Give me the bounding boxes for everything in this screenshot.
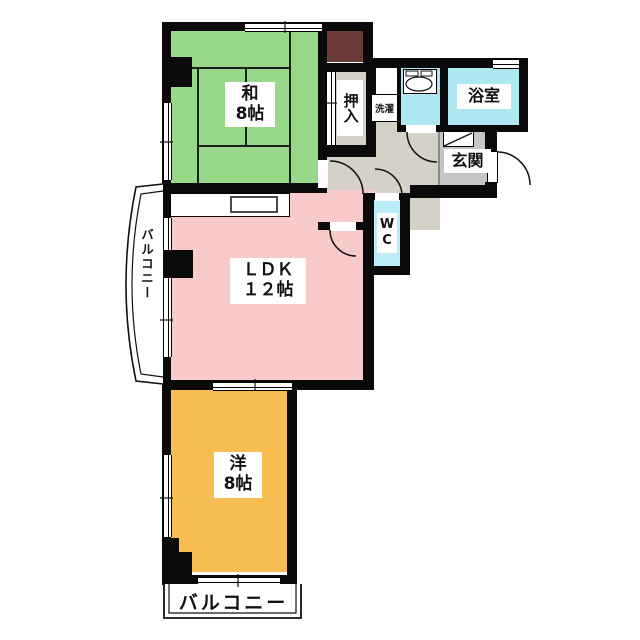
balcony-bottom-text: バルコニー: [179, 592, 289, 614]
tatami-line: [197, 145, 290, 147]
door-opening: [330, 222, 356, 231]
wall-segment: [410, 185, 497, 198]
wall-pillar: [171, 57, 192, 87]
wall-pillar: [162, 538, 179, 552]
kitchen-sink-icon: [230, 196, 278, 213]
genkan-name: 玄関: [451, 152, 483, 170]
tatami-line: [289, 31, 291, 183]
wall-segment: [318, 145, 376, 157]
sliding-door-oshiire: [326, 72, 336, 145]
window: [198, 577, 280, 586]
window: [163, 103, 172, 180]
wc-line2: C: [382, 233, 392, 249]
door-opening: [318, 160, 328, 188]
ldk-name: ＬＤＫ: [243, 261, 294, 281]
room-label-wc: W C: [377, 213, 397, 253]
front-door-arc: [497, 152, 530, 185]
balcony-bottom-label: バルコニー: [166, 588, 301, 615]
window: [213, 382, 292, 391]
window: [245, 23, 322, 32]
room-label-youshitsu: 洋 8帖: [214, 452, 262, 498]
laundry-pan-icon: 洗濯: [371, 94, 398, 122]
washitsu-size: 8帖: [236, 105, 265, 125]
wall-segment: [363, 22, 373, 63]
bathroom-name: 浴室: [468, 87, 500, 105]
shoe-cabinet-icon: [443, 131, 474, 147]
window: [163, 455, 172, 537]
window: [163, 278, 172, 357]
washbasin-icon: [403, 69, 437, 94]
room-label-bathroom: 浴室: [457, 84, 511, 109]
wall-segment: [440, 58, 448, 132]
wall-segment: [287, 390, 297, 583]
wall-pillar: [165, 250, 193, 278]
room-label-genkan: 玄関: [444, 149, 491, 173]
youshitsu-size: 8帖: [224, 475, 253, 495]
door-opening: [375, 193, 399, 201]
balcony-left-label: バルコニー: [137, 228, 156, 301]
oshiire-name: 押入: [341, 93, 358, 123]
laundry-label: 洗濯: [375, 101, 394, 115]
ldk-size: １２帖: [243, 281, 294, 301]
room-label-oshiire: 押入: [337, 80, 363, 136]
window: [163, 218, 172, 250]
room-label-washitsu: 和 8帖: [225, 82, 275, 127]
washitsu-name: 和: [242, 85, 259, 105]
wall-pillar: [162, 552, 192, 577]
wall-segment: [485, 125, 497, 152]
tatami-line: [197, 67, 199, 183]
youshitsu-name: 洋: [230, 455, 247, 475]
alcove-dark-block: [324, 31, 363, 62]
wall-segment: [400, 193, 410, 275]
wall-segment: [162, 183, 327, 193]
floor-plan: 洗濯 和 8帖 ＬＤＫ １２帖: [0, 0, 640, 640]
wall-segment: [519, 58, 528, 132]
window: [493, 59, 519, 69]
balcony-left-text: バルコニー: [139, 228, 154, 301]
room-label-ldk: ＬＤＫ １２帖: [230, 258, 306, 304]
wc-line1: W: [380, 217, 394, 233]
door-opening: [406, 125, 436, 133]
